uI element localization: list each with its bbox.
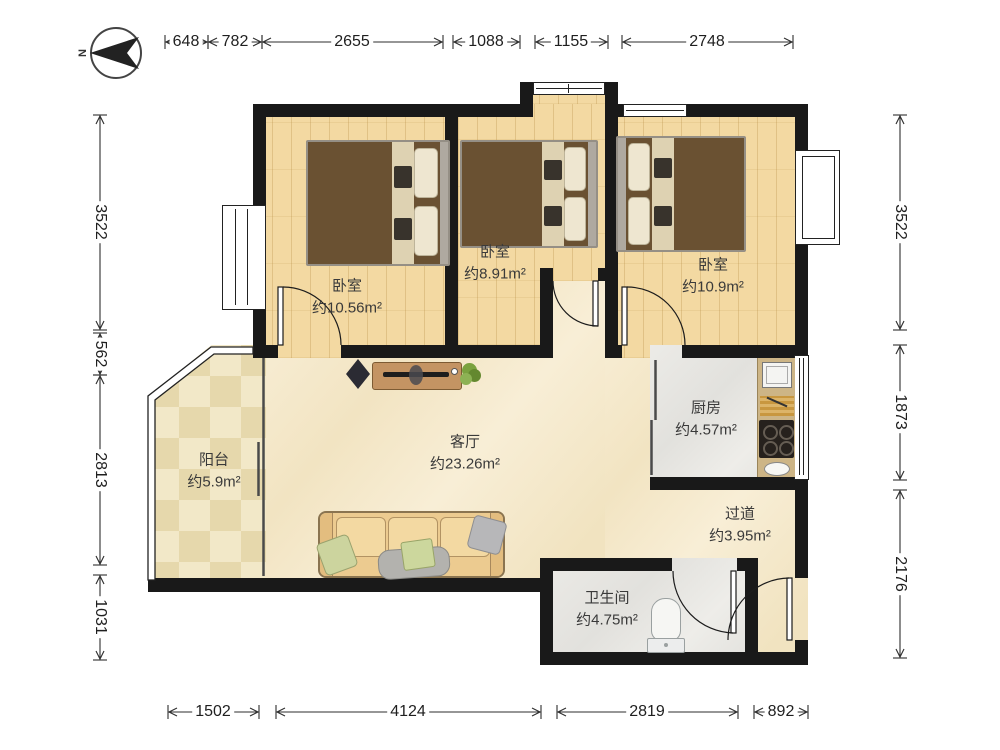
dim-line (729, 708, 737, 712)
room-name: 卧室 (464, 241, 526, 263)
dim-line (623, 38, 631, 42)
dim-right-3: 2176 (891, 553, 909, 595)
dim-line (253, 38, 261, 42)
room-name: 阳台 (187, 449, 240, 471)
dim-line (536, 38, 544, 42)
room-label-living: 客厅 约23.26m² (430, 431, 500, 475)
dim-line (434, 42, 442, 46)
dim-line (96, 116, 100, 124)
dim-line (100, 321, 104, 329)
north-compass: N (77, 28, 141, 78)
dim-line (558, 708, 566, 712)
dim-line (253, 42, 261, 46)
dim-left-3: 2813 (91, 449, 109, 491)
dim-top-3: 2655 (331, 33, 373, 51)
dim-line (755, 708, 763, 712)
dim-line (900, 321, 904, 329)
dim-line (896, 471, 900, 479)
dim-line (729, 712, 737, 716)
dim-line (900, 491, 904, 499)
dim-line (454, 42, 462, 46)
dim-line (250, 712, 258, 716)
room-area: 约10.9m² (682, 276, 744, 298)
dim-left-2: 562 (91, 338, 109, 371)
dim-line (511, 42, 519, 46)
room-area: 约4.75m² (576, 609, 638, 631)
floorplan-canvas: N 648 782 2655 1088 1155 2748 1502 4124 … (0, 0, 1000, 750)
dim-line (209, 38, 217, 42)
dim-line (100, 576, 104, 584)
dim-line (100, 556, 104, 564)
dim-top-1: 648 (170, 33, 203, 51)
room-label-balcony: 阳台 约5.9m² (187, 449, 240, 493)
dim-line (263, 38, 271, 42)
dim-line (454, 38, 462, 42)
dim-line (599, 38, 607, 42)
room-area: 约4.57m² (675, 419, 737, 441)
dim-top-2: 782 (219, 33, 252, 51)
dim-bottom-2: 4124 (387, 703, 429, 721)
dim-line (96, 651, 100, 659)
dim-line (896, 321, 900, 329)
room-label-bedroom2: 卧室 约8.91m² (464, 241, 526, 285)
north-label: N (77, 49, 89, 57)
plan-overlay: N (0, 0, 1000, 750)
dim-line (755, 712, 763, 716)
door-entry (728, 578, 792, 640)
dim-line (532, 708, 540, 712)
dim-bottom-1: 1502 (192, 703, 234, 721)
dim-line (96, 556, 100, 564)
dim-line (784, 42, 792, 46)
room-name: 客厅 (430, 431, 500, 453)
dim-line (277, 708, 285, 712)
room-label-bathroom: 卫生间 约4.75m² (576, 587, 638, 631)
dim-line (784, 38, 792, 42)
dim-line (169, 712, 177, 716)
dim-line (896, 346, 900, 354)
room-area: 约23.26m² (430, 453, 500, 475)
dim-left-4: 1031 (91, 596, 109, 638)
room-label-kitchen: 厨房 约4.57m² (675, 397, 737, 441)
dim-line (558, 712, 566, 716)
dim-line (96, 321, 100, 329)
dim-line (896, 649, 900, 657)
room-area: 约8.91m² (464, 263, 526, 285)
dim-line (623, 42, 631, 46)
dim-line (96, 376, 100, 384)
dim-line (434, 38, 442, 42)
door-bathroom (673, 571, 736, 633)
dim-line (277, 712, 285, 716)
dim-line (900, 116, 904, 124)
dim-top-4: 1088 (465, 33, 507, 51)
dim-line (511, 38, 519, 42)
room-area: 约10.56m² (312, 297, 382, 319)
room-area: 约3.95m² (709, 525, 771, 547)
dim-line (900, 649, 904, 657)
dim-line (100, 116, 104, 124)
room-name: 过道 (709, 503, 771, 525)
dim-left-1: 3522 (91, 201, 109, 243)
room-label-bedroom3: 卧室 约10.9m² (682, 254, 744, 298)
dim-bottom-3: 2819 (626, 703, 668, 721)
dim-line (100, 376, 104, 384)
dim-line (896, 116, 900, 124)
room-name: 卫生间 (576, 587, 638, 609)
dim-bottom-4: 892 (765, 703, 798, 721)
dim-line (599, 42, 607, 46)
dim-line (263, 42, 271, 46)
dim-line (900, 346, 904, 354)
dim-top-6: 2748 (686, 33, 728, 51)
dim-line (799, 712, 807, 716)
room-area: 约5.9m² (187, 471, 240, 493)
room-label-bedroom1: 卧室 约10.56m² (312, 275, 382, 319)
dim-line (96, 576, 100, 584)
door-bedroom3 (622, 287, 685, 345)
dim-top-5: 1155 (551, 33, 591, 51)
dim-line (169, 708, 177, 712)
room-label-hallway: 过道 约3.95m² (709, 503, 771, 547)
dim-line (100, 651, 104, 659)
dim-line (536, 42, 544, 46)
room-name: 卧室 (312, 275, 382, 297)
dim-line (532, 712, 540, 716)
dim-line (900, 471, 904, 479)
door-bedroom2 (553, 281, 598, 326)
dim-line (799, 708, 807, 712)
dim-line (896, 491, 900, 499)
dim-right-2: 1873 (891, 391, 909, 433)
dim-line (209, 42, 217, 46)
dim-right-1: 3522 (891, 201, 909, 243)
dim-line (250, 708, 258, 712)
room-name: 卧室 (682, 254, 744, 276)
room-name: 厨房 (675, 397, 737, 419)
